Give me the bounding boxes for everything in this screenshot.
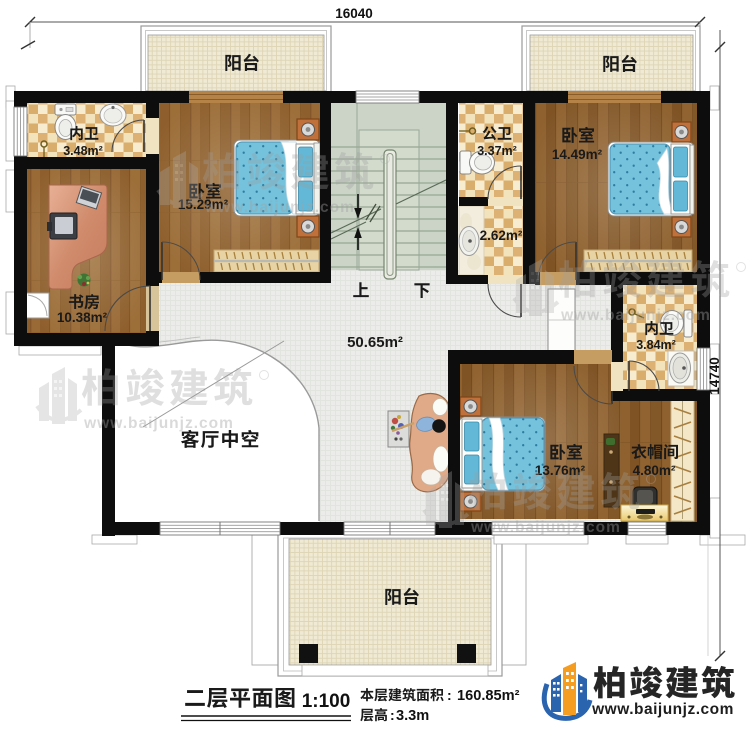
svg-text:10.38m²: 10.38m² <box>57 310 108 325</box>
svg-text:3.48m²: 3.48m² <box>63 144 103 158</box>
svg-text:3.37m²: 3.37m² <box>477 144 517 158</box>
svg-text:50.65m²: 50.65m² <box>347 334 403 351</box>
svg-text:16040: 16040 <box>335 6 373 21</box>
svg-text::: : <box>447 687 452 703</box>
svg-text:14.49m²: 14.49m² <box>552 147 603 162</box>
svg-text:www.baijunjz.com: www.baijunjz.com <box>470 519 621 536</box>
svg-text:www.baijunjz.com: www.baijunjz.com <box>591 701 734 718</box>
svg-text:14740: 14740 <box>707 357 722 395</box>
svg-text:160.85m²: 160.85m² <box>457 688 520 704</box>
svg-text:www.baijunjz.com: www.baijunjz.com <box>83 415 234 432</box>
svg-text:3.3m: 3.3m <box>396 708 429 724</box>
svg-text:www.baijunjz.com: www.baijunjz.com <box>204 199 355 216</box>
svg-text::: : <box>390 707 395 723</box>
svg-text:2.62m²: 2.62m² <box>480 228 523 243</box>
svg-text:www.baijunjz.com: www.baijunjz.com <box>560 307 711 324</box>
svg-text:1:100: 1:100 <box>302 691 351 712</box>
svg-text:3.84m²: 3.84m² <box>636 338 676 352</box>
